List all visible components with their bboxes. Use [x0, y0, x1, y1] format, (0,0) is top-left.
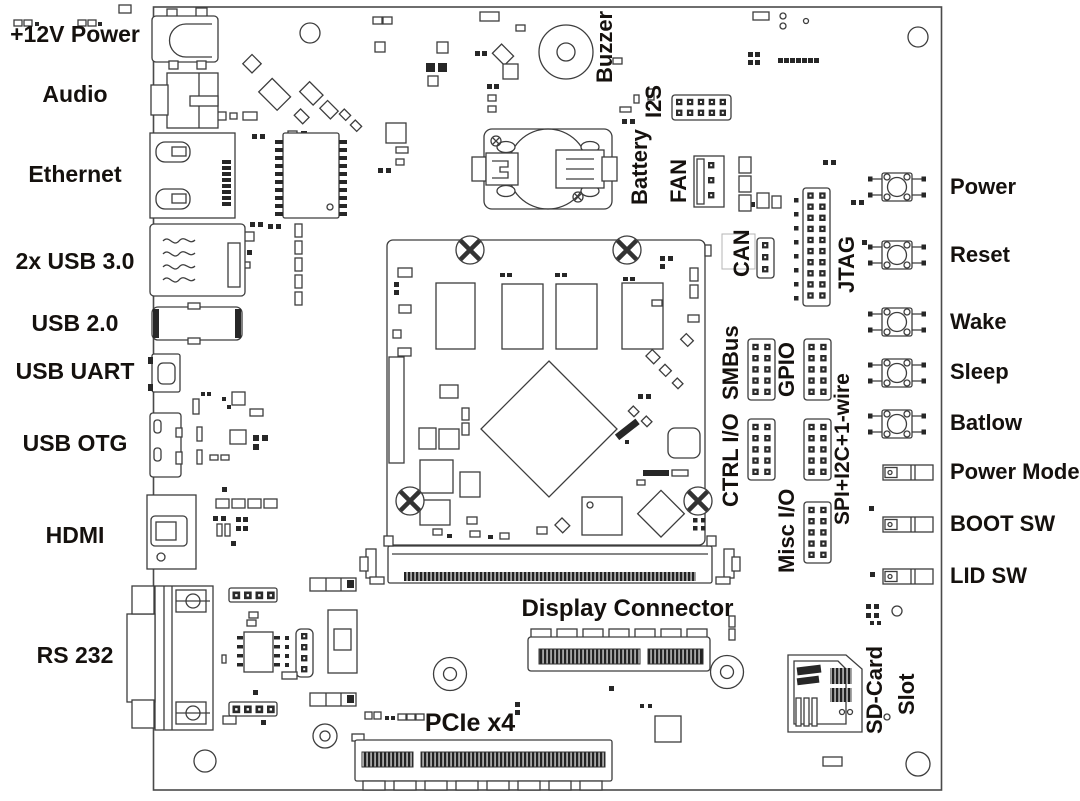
label-sleep: Sleep: [950, 359, 1009, 384]
misc-io-header: [804, 502, 831, 563]
label-power-mode: Power Mode: [950, 459, 1080, 484]
module-screw: [456, 236, 484, 264]
usb-uart-port: [148, 354, 180, 392]
label-hdmi: HDMI: [2, 522, 148, 548]
label-wake: Wake: [950, 309, 1007, 334]
label-gpio: GPIO: [774, 336, 804, 402]
label-audio: Audio: [2, 81, 148, 107]
battery-holder: [472, 129, 617, 209]
label-power: Power: [950, 174, 1016, 199]
label-spi-i2c-1wire: SPI+I2C+1-wire: [831, 358, 861, 540]
usb3-ports: [150, 224, 245, 296]
power-12v-jack: [152, 8, 218, 69]
gpio-header: [804, 339, 831, 400]
usb2-port: [152, 303, 242, 344]
smbus-header: [748, 339, 775, 400]
label-boot-sw: BOOT SW: [950, 511, 1055, 536]
label-reset: Reset: [950, 242, 1010, 267]
label-usb3: 2x USB 3.0: [2, 248, 148, 274]
module-screw: [684, 487, 712, 515]
sd-card-connector: [788, 655, 862, 732]
i2s-header: [672, 95, 731, 120]
ctrl-io-header: [748, 419, 775, 480]
label-12v-power: +12V Power: [2, 21, 148, 47]
spi-i2c-1wire-header: [804, 419, 831, 480]
label-jtag: JTAG: [834, 218, 864, 310]
label-battery: Battery: [627, 124, 657, 210]
label-sd-card: SD-Card: [862, 640, 892, 740]
label-misc-io: Misc I/O: [774, 482, 804, 580]
label-usb-uart: USB UART: [2, 358, 148, 384]
pcie-slot: [352, 734, 612, 790]
fan-connector: [694, 156, 724, 207]
label-usb2: USB 2.0: [2, 310, 148, 336]
usb-otg-port: [150, 413, 182, 477]
ethernet-phy-chip: [275, 133, 347, 218]
label-rs232: RS 232: [2, 642, 148, 668]
power-mode-slide-switch: [883, 465, 933, 480]
boot-sw-slide-switch: [883, 517, 933, 532]
jtag-header: [803, 188, 830, 306]
label-can: CAN: [729, 226, 759, 280]
board-diagram: +12V Power Audio Ethernet 2x USB 3.0 USB…: [0, 0, 1080, 801]
module-screw: [613, 236, 641, 264]
hdmi-port: [147, 495, 196, 569]
ethernet-port: [150, 133, 235, 218]
label-usb-otg: USB OTG: [2, 430, 148, 456]
label-display-connector: Display Connector: [520, 595, 735, 623]
som-module: [387, 236, 712, 545]
label-lid-sw: LID SW: [950, 563, 1027, 588]
label-i2s: I2S: [641, 80, 671, 122]
label-pcie-x4: PCIe x4: [420, 709, 520, 738]
label-ctrl-io: CTRL I/O: [718, 402, 748, 518]
label-sd-slot: Slot: [894, 666, 924, 722]
label-smbus: SMBus: [718, 322, 748, 404]
lid-sw-slide-switch: [883, 569, 933, 584]
label-buzzer: Buzzer: [592, 8, 622, 86]
label-ethernet: Ethernet: [2, 161, 148, 187]
module-screw: [396, 487, 424, 515]
label-fan: FAN: [666, 154, 696, 208]
label-batlow: Batlow: [950, 410, 1022, 435]
buzzer-component: [539, 25, 593, 79]
